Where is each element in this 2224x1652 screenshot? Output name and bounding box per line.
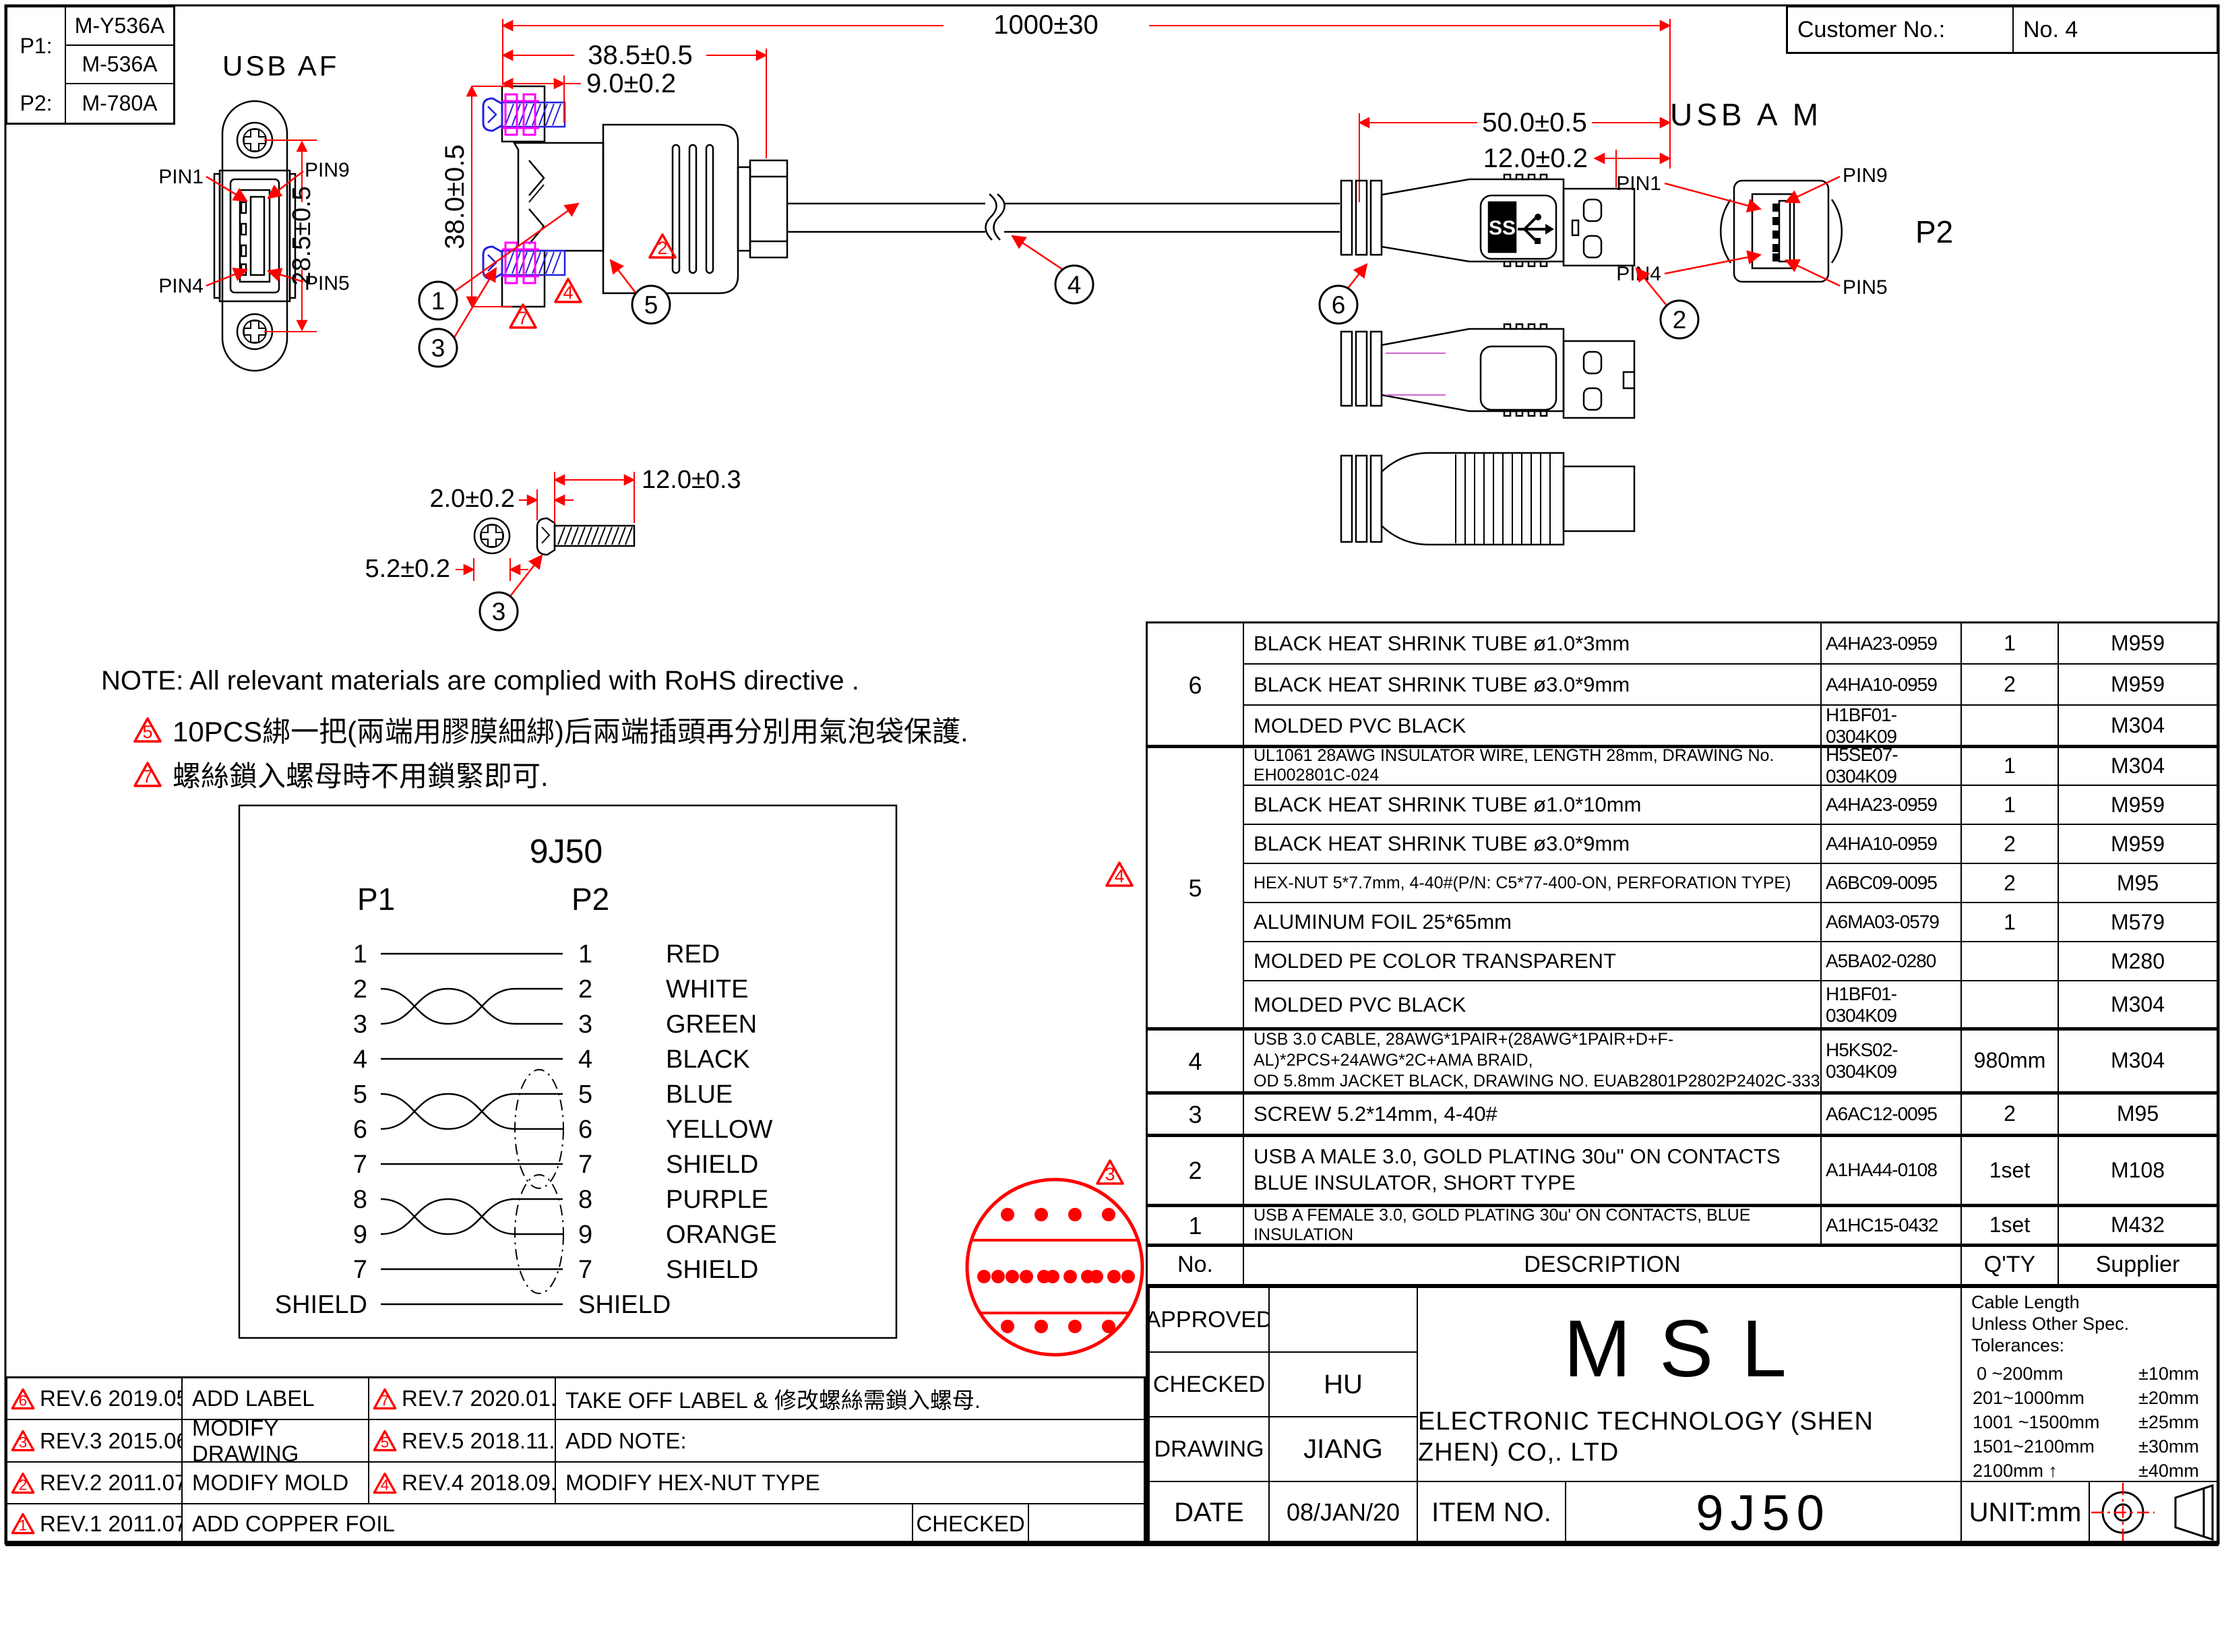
screw-detail-dims: 2.0±0.2 12.0±0.3 5.2±0.2 [365, 466, 741, 583]
callout-5: 5 [632, 286, 670, 324]
rev-checked-cell: CHECKED [913, 1504, 1029, 1543]
rev-badge-icon: 1 [10, 1512, 36, 1535]
svg-text:5: 5 [644, 291, 658, 319]
company-name: MSL [1564, 1300, 1815, 1397]
usb-af-front-view: USB AF [214, 50, 339, 371]
wiring-title: 9J50 [530, 832, 603, 870]
pin4-label: PIN4 [158, 275, 204, 297]
approved-label: APPROVED [1150, 1288, 1270, 1353]
bom-row-desc: BLACK HEAT SHRINK TUBE ø3.0*9mm [1244, 825, 1822, 864]
note-item-1: 5 10PCS綁一把(兩端用膠膜細綁)后兩端插頭再分別用氣泡袋保護. [132, 709, 968, 750]
usb-ss-logo-icon: SS [1481, 195, 1556, 259]
label-detail-circle [967, 1180, 1142, 1355]
bom-group-1: 1 [1148, 1206, 1244, 1246]
svg-text:6: 6 [578, 1115, 592, 1144]
date-label: DATE [1150, 1482, 1270, 1543]
svg-text:3: 3 [353, 1010, 367, 1039]
svg-text:WHITE: WHITE [666, 975, 748, 1004]
svg-text:SS: SS [1489, 217, 1516, 239]
svg-text:38.0±0.5: 38.0±0.5 [440, 144, 470, 249]
bom-group-4: 4 [1148, 1029, 1244, 1093]
customer-box: Customer No.: No. 4 [1786, 5, 2219, 54]
rev-badge-ic on: 2 [10, 1471, 36, 1495]
rev-badge-icon: 7 [372, 1387, 398, 1411]
bom-header-no: No. [1148, 1246, 1244, 1284]
svg-text:6: 6 [353, 1115, 367, 1144]
svg-text:12.0±0.3: 12.0±0.3 [642, 466, 741, 494]
callout-3b: 3 [480, 592, 518, 630]
triangle-5-icon: 5 [132, 716, 163, 744]
bom-row-desc: HEX-NUT 5*7.7mm, 4-40#(P/N: C5*77-400-ON… [1244, 864, 1822, 903]
usb-am-side-view-3 [1341, 453, 1634, 545]
tolerance-cell: Cable Length Unless Other Spec. Toleranc… [1962, 1288, 2219, 1482]
bom-header-qty: Q'TY [1962, 1246, 2059, 1284]
bom-row-desc: MOLDED PVC BLACK [1244, 706, 1822, 747]
p1-model-a-cell: M-Y536A [66, 7, 173, 46]
pin1-label: PIN1 [158, 166, 204, 188]
svg-text:ORANGE: ORANGE [666, 1221, 777, 1249]
svg-text:50.0±0.5: 50.0±0.5 [1482, 108, 1586, 137]
svg-text:4: 4 [563, 282, 573, 303]
model-number-box: P1: M-Y536A M-536A P2: M-780A [5, 5, 175, 125]
svg-text:BLUE: BLUE [666, 1080, 733, 1109]
svg-text:7: 7 [142, 766, 152, 787]
bom-row-desc: ALUMINUM FOIL 25*65mm [1244, 903, 1822, 942]
bom-row-desc: MOLDED PVC BLACK [1244, 981, 1822, 1029]
svg-text:PURPLE: PURPLE [666, 1186, 768, 1214]
note-title: NOTE: All relevant materials are complie… [101, 666, 859, 696]
svg-text:38.5±0.5: 38.5±0.5 [588, 40, 692, 70]
svg-text:PIN1: PIN1 [1616, 173, 1661, 195]
bom-row-desc: BLACK HEAT SHRINK TUBE ø3.0*9mm [1244, 665, 1822, 706]
svg-text:9: 9 [578, 1221, 592, 1249]
svg-text:5: 5 [353, 1080, 367, 1109]
svg-text:3: 3 [431, 334, 445, 362]
svg-text:5: 5 [142, 722, 152, 742]
svg-text:8: 8 [353, 1186, 367, 1214]
note-item-2: 7 螺絲鎖入螺母時不用鎖緊即可. [132, 754, 549, 795]
bom-group-5: 5 [1148, 747, 1244, 1029]
svg-text:6: 6 [1332, 291, 1346, 319]
callout-balloons: 1 3 5 4 6 2 3 [419, 266, 1698, 630]
rev-badge-icon: 5 [372, 1429, 398, 1452]
engineering-drawing-sheet: { "header": { "p1_label": "P1:", "p1_mod… [0, 0, 2224, 1652]
svg-text:7: 7 [381, 1392, 389, 1409]
unit-cell: UNIT:mm [1962, 1482, 2090, 1543]
svg-text:5.2±0.2: 5.2±0.2 [365, 555, 450, 583]
bom-group-6: 6 [1148, 623, 1244, 747]
drawing-value: JIANG [1270, 1417, 1418, 1482]
usb-am-front-view: USB A M [1670, 97, 1842, 282]
company-subtitle: ELECTRONIC TECHNOLOGY (SHEN ZHEN) CO,. L… [1418, 1407, 1960, 1468]
svg-text:6: 6 [19, 1392, 27, 1409]
svg-text:5: 5 [381, 1434, 389, 1450]
svg-text:7: 7 [518, 308, 528, 328]
wiring-p1: P1 [357, 882, 395, 917]
bom-row-desc: BLACK HEAT SHRINK TUBE ø1.0*3mm [1244, 623, 1822, 665]
svg-text:2: 2 [578, 975, 592, 1004]
svg-text:1: 1 [431, 287, 445, 315]
callout-1: 1 [419, 282, 457, 319]
svg-text:SHIELD: SHIELD [275, 1291, 367, 1319]
svg-text:4: 4 [1114, 866, 1124, 886]
svg-text:PIN4: PIN4 [1616, 263, 1661, 285]
svg-text:7: 7 [578, 1151, 592, 1179]
svg-text:1000±30: 1000±30 [993, 10, 1098, 40]
customer-value-cell: No. 4 [2014, 7, 2217, 52]
bom-header-supplier: Supplier [2059, 1246, 2217, 1284]
p2-label-cell: P2: [7, 84, 66, 123]
svg-text:GREEN: GREEN [666, 1010, 757, 1039]
item-no-value: 9J50 [1566, 1482, 1962, 1543]
svg-text:SHIELD: SHIELD [666, 1256, 758, 1284]
p2-model-cell: M-780A [66, 84, 173, 123]
callout-2: 2 [1661, 301, 1698, 338]
svg-text:2.0±0.2: 2.0±0.2 [429, 485, 515, 513]
svg-text:4: 4 [578, 1045, 592, 1074]
svg-text:SHIELD: SHIELD [666, 1151, 758, 1179]
usb-af-side-view [502, 86, 787, 307]
bom-row-desc: USB A FEMALE 3.0, GOLD PLATING 30u' ON C… [1244, 1206, 1822, 1246]
wiring-diagram: 9J50 P1 P2 11RED 22WHITE 33GREEN 44BLACK… [239, 805, 896, 1338]
date-value: 08/JAN/20 [1270, 1482, 1418, 1543]
svg-text:2: 2 [657, 238, 667, 258]
item-no-label: ITEM NO. [1418, 1482, 1566, 1543]
svg-text:7: 7 [353, 1256, 367, 1284]
svg-text:PIN5: PIN5 [1843, 276, 1888, 299]
usb-am-label: USB A M [1670, 97, 1822, 132]
bom-row-desc: MOLDED PE COLOR TRANSPARENT [1244, 942, 1822, 981]
svg-text:7: 7 [578, 1256, 592, 1284]
svg-text:1: 1 [353, 940, 367, 969]
p1-model-b-cell: M-536A [66, 46, 173, 84]
svg-text:28.5±0.5: 28.5±0.5 [288, 186, 316, 286]
bom-row-desc: SCREW 5.2*14mm, 4-40# [1244, 1093, 1822, 1136]
svg-text:5: 5 [578, 1080, 592, 1109]
callout-6: 6 [1320, 286, 1357, 324]
svg-text:SHIELD: SHIELD [578, 1291, 671, 1319]
svg-text:YELLOW: YELLOW [666, 1115, 773, 1144]
svg-text:9.0±0.2: 9.0±0.2 [586, 69, 676, 98]
triangle-7-icon: 7 [132, 760, 163, 789]
revision-table: 6 REV.6 2019.05.16 ADD LABEL 7 REV.7 202… [5, 1376, 1146, 1545]
p1-label-cell: P1: [7, 7, 66, 84]
callout-4: 4 [1055, 266, 1093, 303]
rev-badge-icon: 3 [10, 1429, 36, 1452]
approved-value [1270, 1288, 1418, 1353]
bom-row-desc: USB 3.0 CABLE, 28AWG*1PAIR+(28AWG*1PAIR+… [1244, 1029, 1822, 1093]
svg-text:3: 3 [578, 1010, 592, 1039]
usb-am-side-view-2 [1341, 324, 1634, 418]
projection-cell [2090, 1482, 2219, 1543]
drawing-label: DRAWING [1150, 1417, 1270, 1482]
svg-text:12.0±0.2: 12.0±0.2 [1483, 144, 1588, 173]
svg-text:3: 3 [492, 598, 506, 625]
svg-text:2: 2 [353, 975, 367, 1004]
bom-row-desc: UL1061 28AWG INSULATOR WIRE, LENGTH 28mm… [1244, 747, 1822, 786]
bom-row-desc: USB A MALE 3.0, GOLD PLATING 30u" ON CON… [1244, 1136, 1822, 1206]
svg-text:PIN9: PIN9 [1843, 164, 1888, 187]
screw-detail [474, 518, 634, 555]
checked-label: CHECKED [1150, 1353, 1270, 1417]
bom-table: 6 5 4 3 2 1 BLACK HEAT SHRINK TUBE ø1.0*… [1146, 621, 2219, 1286]
cable-lines [787, 194, 1340, 240]
svg-text:2: 2 [19, 1476, 27, 1493]
rev-badge-icon: 4 [372, 1471, 398, 1495]
svg-text:4: 4 [1068, 271, 1082, 299]
svg-text:3: 3 [19, 1434, 27, 1450]
rev-badge-icon: 6 [10, 1387, 36, 1411]
svg-text:BLACK: BLACK [666, 1045, 750, 1074]
svg-text:3: 3 [1105, 1164, 1115, 1184]
checked-value: HU [1270, 1353, 1418, 1417]
pin9-label: PIN9 [305, 159, 350, 181]
usb-af-label: USB AF [222, 50, 339, 82]
p2-front-label: P2 [1915, 214, 1953, 249]
bom-group-2: 2 [1148, 1136, 1244, 1206]
svg-text:7: 7 [353, 1151, 367, 1179]
svg-text:8: 8 [578, 1186, 592, 1214]
svg-text:4: 4 [353, 1045, 367, 1074]
bom-row-desc: BLACK HEAT SHRINK TUBE ø1.0*10mm [1244, 786, 1822, 825]
svg-text:2: 2 [1673, 306, 1687, 334]
callout-3: 3 [419, 329, 457, 367]
svg-text:4: 4 [381, 1476, 389, 1493]
customer-label-cell: Customer No.: [1788, 7, 2014, 52]
company-cell: MSL ELECTRONIC TECHNOLOGY (SHEN ZHEN) CO… [1418, 1288, 1962, 1482]
wiring-p2: P2 [572, 882, 609, 917]
title-block: APPROVED CHECKED HU DRAWING JIANG DATE 0… [1146, 1286, 2219, 1545]
svg-text:9: 9 [353, 1221, 367, 1249]
usb-am-side-view-1: SS [1341, 175, 1634, 266]
svg-text:1: 1 [19, 1517, 27, 1533]
svg-text:RED: RED [666, 940, 720, 969]
bom-header-description: DESCRIPTION [1244, 1246, 1962, 1284]
bom-group-3: 3 [1148, 1093, 1244, 1136]
svg-text:1: 1 [578, 940, 592, 969]
